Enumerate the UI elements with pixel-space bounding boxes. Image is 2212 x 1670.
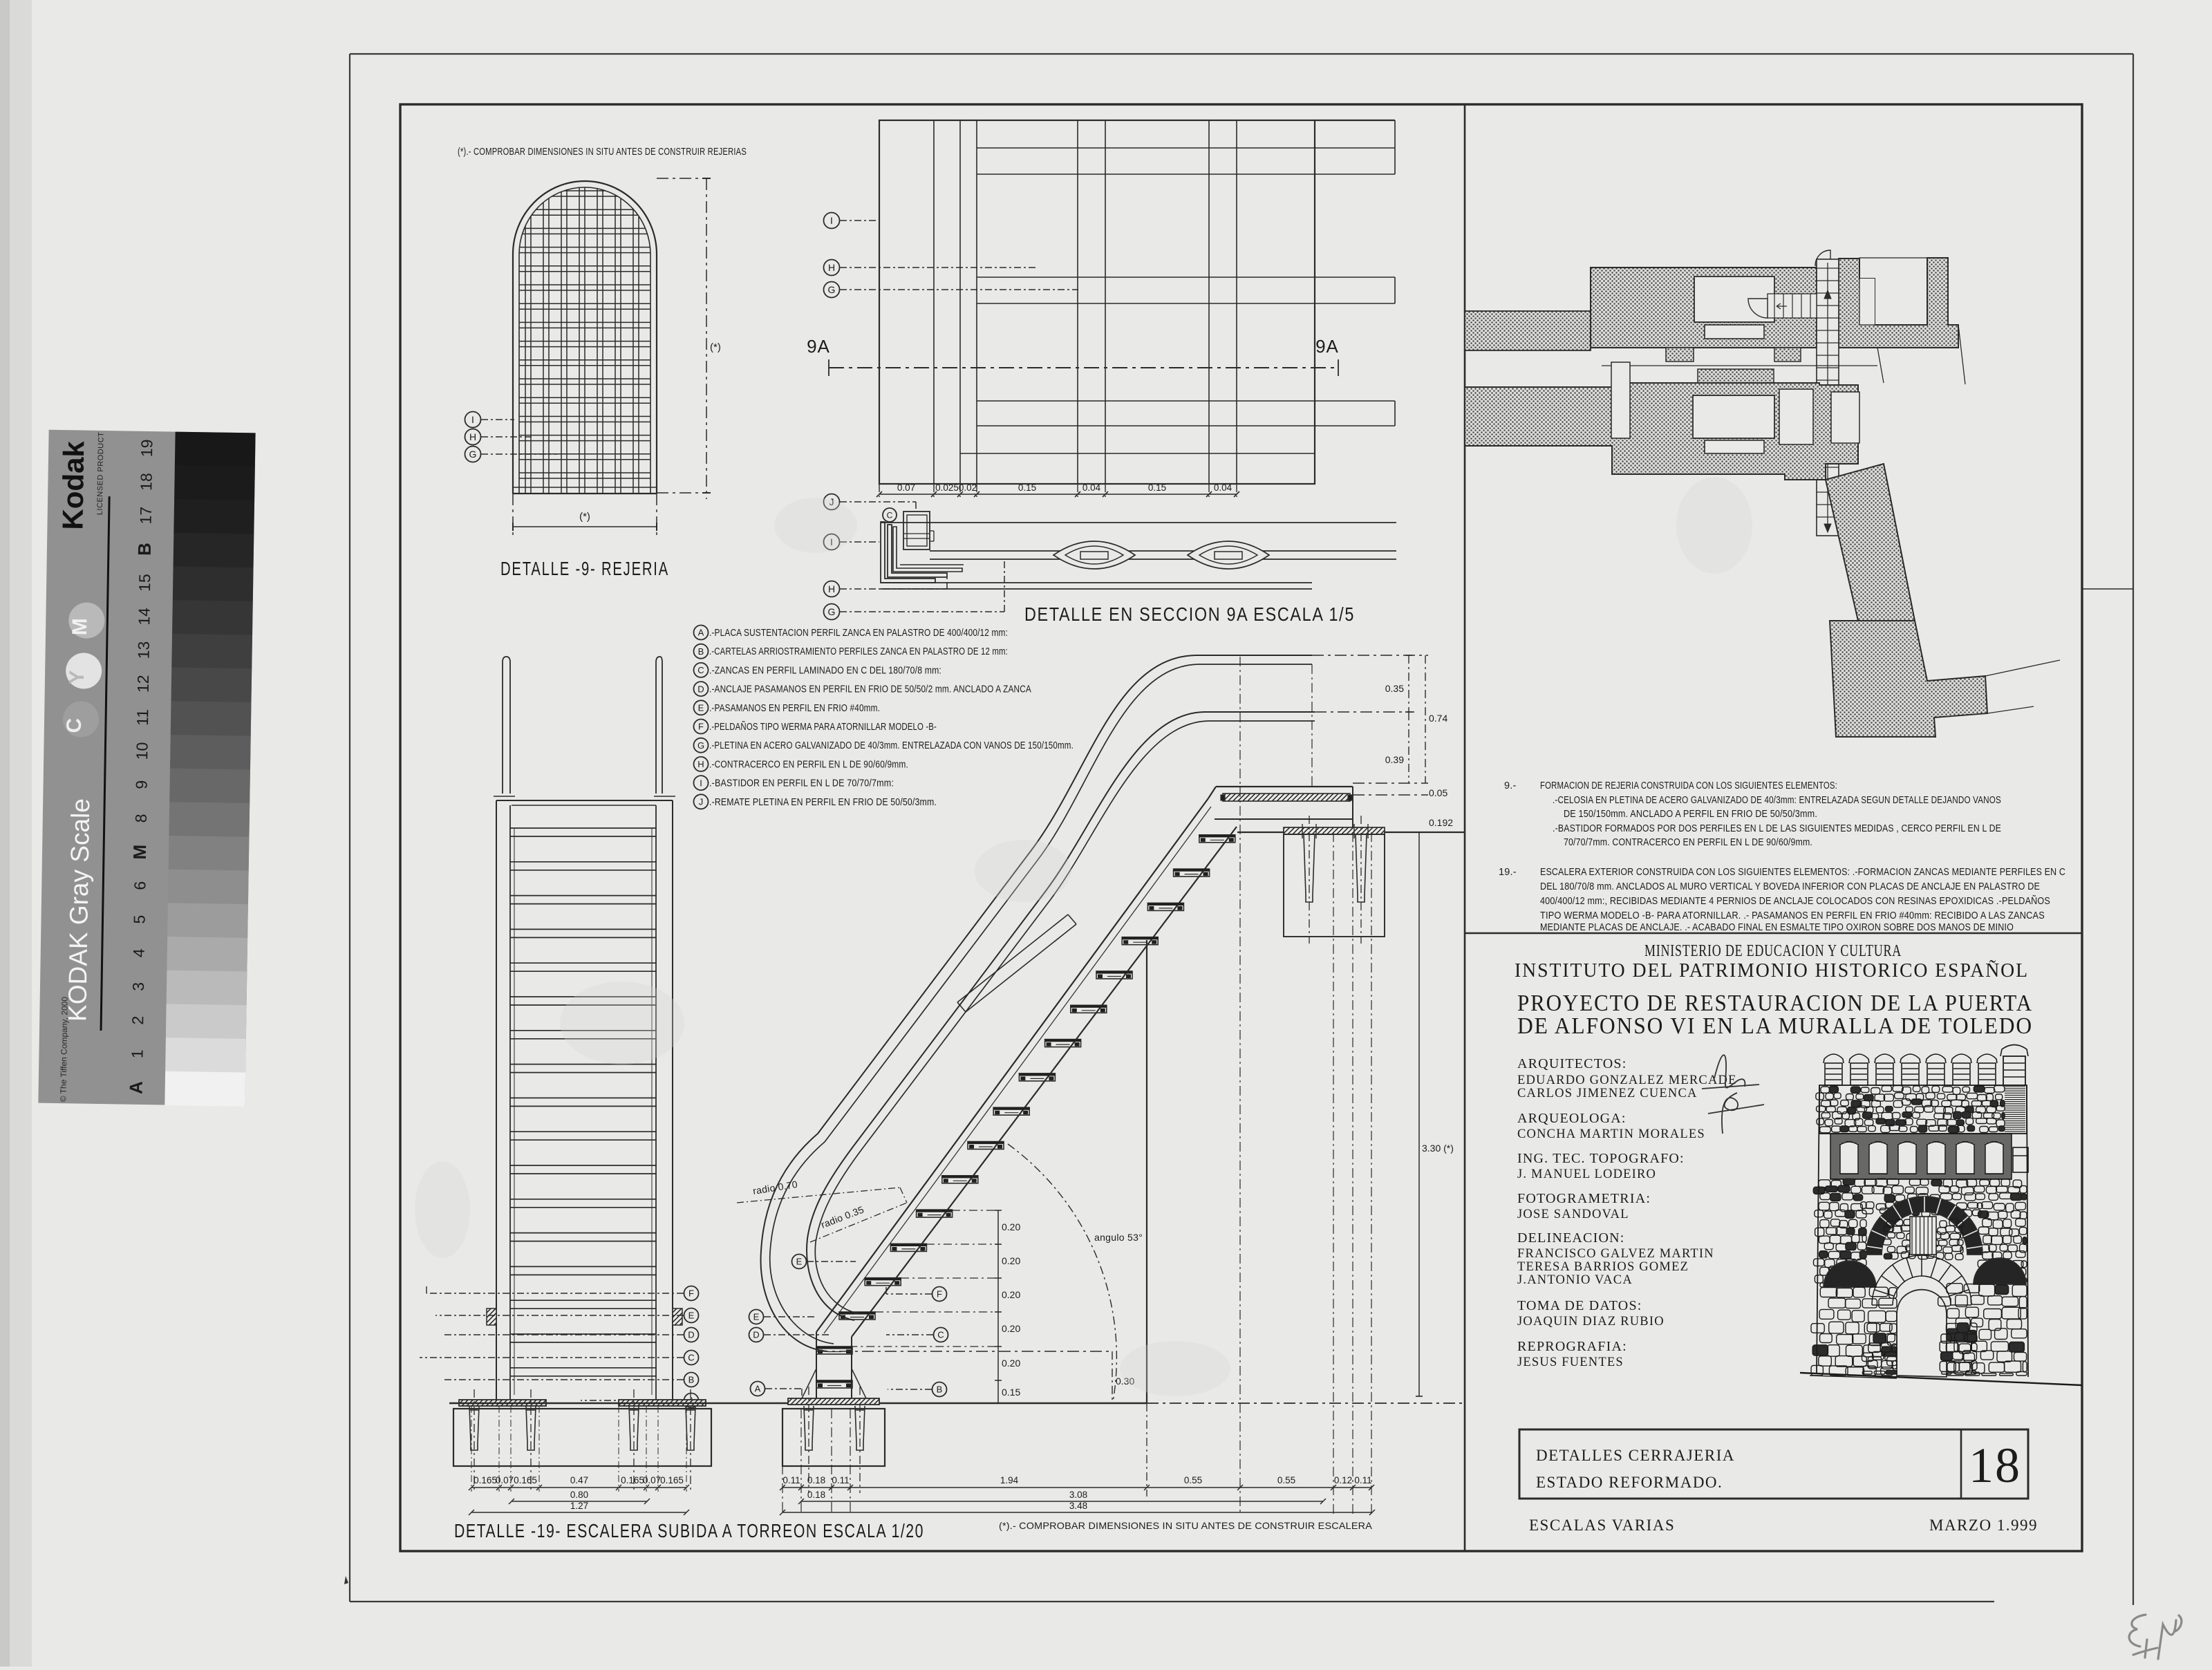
svg-text:.-CELOSIA EN PLETINA DE ACERO: .-CELOSIA EN PLETINA DE ACERO GALVANIZAD…: [1553, 795, 2001, 806]
svg-text:DETALLES CERRAJERIA: DETALLES CERRAJERIA: [1536, 1447, 1735, 1464]
svg-text:.-ANCLAJE PASAMANOS EN PERFIL: .-ANCLAJE PASAMANOS EN PERFIL EN FRIO DE…: [709, 684, 1031, 695]
svg-text:H: H: [828, 262, 835, 273]
svg-text:17: 17: [137, 507, 155, 525]
svg-text:.-REMATE PLETINA EN PERFIL EN: .-REMATE PLETINA EN PERFIL EN FRIO DE 50…: [709, 797, 937, 808]
svg-text:0.20: 0.20: [1002, 1289, 1020, 1300]
svg-text:12: 12: [134, 675, 152, 693]
svg-text:ARQUITECTOS:: ARQUITECTOS:: [1517, 1056, 1627, 1071]
svg-text:G: G: [828, 606, 836, 617]
svg-text:0.15: 0.15: [1002, 1387, 1020, 1398]
svg-text:F: F: [937, 1289, 942, 1300]
svg-text:TERESA BARRIOS GOMEZ: TERESA BARRIOS GOMEZ: [1517, 1260, 1689, 1274]
svg-text:DE ALFONSO VI EN LA MURAL: DE ALFONSO VI EN LA MURALLA DE TOLEDO: [1517, 1013, 2033, 1039]
svg-text:.-ZANCAS EN PERFIL LAMINADO EN: .-ZANCAS EN PERFIL LAMINADO EN C DEL 180…: [709, 665, 941, 676]
svg-text:Kodak: Kodak: [56, 440, 90, 530]
svg-text:0.35: 0.35: [1385, 683, 1404, 694]
svg-text:0.11: 0.11: [1354, 1475, 1371, 1485]
svg-text:C: C: [688, 1353, 694, 1363]
svg-text:MINISTERIO DE EDUCACION Y: MINISTERIO DE EDUCACION Y CULTURA: [1644, 942, 1902, 960]
svg-text:0.11: 0.11: [832, 1475, 849, 1485]
svg-text:H: H: [469, 431, 476, 442]
svg-text:C: C: [887, 510, 893, 520]
svg-text:0.04: 0.04: [1214, 482, 1232, 493]
svg-text:FORMACION DE REJERIA CONSTRUID: FORMACION DE REJERIA CONSTRUIDA CON LOS …: [1540, 780, 1837, 791]
svg-text:70/70/7mm. CONTRACERCO EN PERF: 70/70/7mm. CONTRACERCO EN PERFIL EN L DE…: [1564, 837, 1812, 848]
svg-text:9: 9: [133, 780, 151, 789]
svg-text:JOSE SANDOVAL: JOSE SANDOVAL: [1517, 1208, 1629, 1221]
svg-text:D: D: [688, 1330, 694, 1340]
svg-text:ING. TEC. TOPOGRAFO:: ING. TEC. TOPOGRAFO:: [1517, 1151, 1685, 1166]
svg-text:B: B: [688, 1375, 695, 1385]
svg-text:F: F: [698, 722, 704, 732]
svg-text:0.55: 0.55: [1277, 1475, 1295, 1485]
svg-text:9.-: 9.-: [1504, 780, 1517, 791]
svg-text:.-PELDAÑOS TIPO WERMA PARA ATO: .-PELDAÑOS TIPO WERMA PARA ATORNILLAR MO…: [709, 721, 937, 733]
svg-text:3.48: 3.48: [1069, 1501, 1087, 1511]
svg-text:G: G: [828, 284, 836, 295]
svg-text:CONCHA MARTIN MORALES: CONCHA MARTIN MORALES: [1517, 1127, 1705, 1141]
svg-text:I: I: [830, 215, 833, 226]
svg-text:TOMA DE DATOS:: TOMA DE DATOS:: [1517, 1298, 1642, 1313]
svg-text:0.04: 0.04: [1082, 482, 1101, 493]
svg-text:10: 10: [133, 742, 151, 760]
svg-text:3.08: 3.08: [1069, 1490, 1087, 1500]
svg-text:14: 14: [135, 608, 153, 626]
svg-text:ESCALAS VARIAS: ESCALAS VARIAS: [1529, 1517, 1675, 1534]
svg-text:.-BASTIDOR FORMADOS POR DOS PE: .-BASTIDOR FORMADOS POR DOS PERFILES EN …: [1553, 823, 2001, 834]
svg-text:M: M: [68, 617, 91, 635]
svg-text:DE 150/150mm. ANCLADO A PERFIL: DE 150/150mm. ANCLADO A PERFIL EN FRIO D…: [1564, 809, 1817, 820]
svg-text:0.20: 0.20: [1002, 1323, 1020, 1334]
svg-text:18: 18: [137, 473, 155, 491]
svg-text:FRANCISCO GALVEZ MARTIN: FRANCISCO GALVEZ MARTIN: [1517, 1247, 1714, 1261]
svg-text:C: C: [697, 665, 704, 675]
svg-text:LICENSED PRODUCT: LICENSED PRODUCT: [96, 432, 106, 516]
svg-text:0.47: 0.47: [570, 1475, 588, 1485]
svg-text:DETALLE EN SECCION 9A ESCA: DETALLE EN SECCION 9A ESCALA 1/5: [1024, 603, 1355, 625]
svg-text:B: B: [937, 1385, 943, 1395]
svg-text:0.18: 0.18: [807, 1475, 825, 1485]
svg-text:D: D: [753, 1330, 759, 1340]
svg-text:0.07: 0.07: [897, 482, 915, 493]
svg-text:A: A: [126, 1081, 147, 1094]
svg-text:0.165: 0.165: [660, 1475, 684, 1485]
svg-text:CARLOS JIMENEZ CUENCA: CARLOS JIMENEZ CUENCA: [1517, 1087, 1698, 1100]
svg-text:0.15: 0.15: [1148, 482, 1166, 493]
svg-text:F: F: [688, 1288, 694, 1299]
svg-text:I: I: [471, 414, 474, 425]
svg-text:0.165: 0.165: [514, 1475, 537, 1485]
svg-text:DEL 180/70/8 mm. ANCLADOS AL M: DEL 180/70/8 mm. ANCLADOS AL MURO VERTIC…: [1540, 881, 2040, 892]
svg-text:0.20: 0.20: [1002, 1221, 1020, 1232]
svg-text:400/400/12 mm:, RECIBIDAS MEDI: 400/400/12 mm:, RECIBIDAS MEDIANTE 4 PER…: [1540, 895, 2050, 907]
svg-text:J.ANTONIO VACA: J.ANTONIO VACA: [1517, 1273, 1633, 1287]
svg-text:TIPO WERMA MODELO -B- PARA ATO: TIPO WERMA MODELO -B- PARA ATORNILLAR. .…: [1540, 910, 2045, 921]
svg-text:ESCALERA EXTERIOR CONSTRUIDA C: ESCALERA EXTERIOR CONSTRUIDA CON LOS SIG…: [1540, 867, 2065, 878]
svg-text:8: 8: [132, 814, 150, 823]
svg-text:JOAQUIN DIAZ RUBIO: JOAQUIN DIAZ RUBIO: [1517, 1315, 1665, 1329]
svg-text:4: 4: [130, 948, 148, 957]
svg-text:angulo 53°: angulo 53°: [1094, 1232, 1143, 1243]
svg-text:0.18: 0.18: [807, 1490, 825, 1500]
svg-text:(*): (*): [579, 511, 590, 523]
svg-text:H: H: [697, 759, 704, 769]
svg-text:E: E: [753, 1312, 760, 1322]
svg-text:ARQUEOLOGA:: ARQUEOLOGA:: [1517, 1111, 1627, 1126]
svg-text:.-PASAMANOS EN PERFIL EN FRIO: .-PASAMANOS EN PERFIL EN FRIO #40mm.: [709, 703, 880, 714]
svg-text:B: B: [134, 543, 155, 556]
svg-text:(*): (*): [710, 341, 721, 353]
svg-text:0.02: 0.02: [959, 482, 977, 493]
svg-text:0.165: 0.165: [474, 1475, 497, 1485]
svg-text:C: C: [937, 1330, 944, 1340]
svg-text:0.07: 0.07: [496, 1475, 514, 1485]
svg-text:11: 11: [133, 709, 151, 726]
svg-text:19.-: 19.-: [1499, 867, 1517, 878]
svg-text:DETALLE -9- REJERIA: DETALLE -9- REJERIA: [500, 558, 669, 579]
svg-text:DELINEACION:: DELINEACION:: [1517, 1230, 1624, 1246]
svg-text:A: A: [698, 628, 704, 638]
svg-text:A: A: [755, 1384, 761, 1394]
svg-text:0.05: 0.05: [1429, 787, 1447, 798]
svg-text:0.07: 0.07: [643, 1475, 661, 1485]
svg-text:.-BASTIDOR EN PERFIL EN L DE 7: .-BASTIDOR EN PERFIL EN L DE 70/70/7mm:: [709, 778, 894, 789]
svg-text:C: C: [63, 717, 86, 733]
svg-text:J. MANUEL LODEIRO: J. MANUEL LODEIRO: [1517, 1167, 1656, 1181]
svg-text:MARZO 1.999: MARZO 1.999: [1929, 1517, 2038, 1534]
svg-text:0.025: 0.025: [935, 482, 959, 493]
svg-text:3: 3: [129, 982, 147, 991]
svg-text:JESUS FUENTES: JESUS FUENTES: [1517, 1355, 1624, 1369]
svg-text:DETALLE -19- ESCALERA SUB: DETALLE -19- ESCALERA SUBIDA A TORREON E…: [454, 1520, 924, 1541]
svg-text:E: E: [698, 703, 704, 713]
svg-text:0.55: 0.55: [1184, 1475, 1202, 1485]
svg-text:9A: 9A: [1315, 336, 1339, 357]
svg-text:0.80: 0.80: [570, 1490, 588, 1500]
svg-text:1: 1: [128, 1049, 146, 1058]
svg-text:0.15: 0.15: [1018, 482, 1036, 493]
svg-text:ESTADO REFORMADO.: ESTADO REFORMADO.: [1536, 1474, 1723, 1491]
svg-text:.-PLACA SUSTENTACION PERFIL ZA: .-PLACA SUSTENTACION PERFIL ZANCA EN PAL…: [709, 628, 1008, 639]
svg-text:G: G: [697, 740, 704, 751]
svg-text:E: E: [688, 1311, 695, 1321]
svg-text:B: B: [698, 646, 704, 657]
svg-text:0.20: 0.20: [1002, 1358, 1020, 1369]
svg-text:1.94: 1.94: [1000, 1475, 1019, 1485]
svg-text:H: H: [828, 583, 835, 594]
svg-text:1.27: 1.27: [570, 1501, 588, 1511]
svg-text:18: 18: [1969, 1438, 2021, 1493]
svg-text:REPROGRAFIA:: REPROGRAFIA:: [1517, 1339, 1627, 1354]
svg-text:(*).- COMPROBAR DIMENSIONES: (*).- COMPROBAR DIMENSIONES IN SITU ANTE…: [458, 147, 747, 158]
svg-text:0.165: 0.165: [621, 1475, 644, 1485]
svg-text:6: 6: [131, 881, 149, 890]
svg-text:0.39: 0.39: [1385, 754, 1404, 765]
svg-text:2: 2: [129, 1015, 147, 1024]
svg-text:EDUARDO GONZALEZ MERCADE: EDUARDO GONZALEZ MERCADE: [1517, 1073, 1737, 1087]
svg-text:KODAK Gray Scale: KODAK Gray Scale: [63, 798, 95, 1022]
svg-text:(*).- COMPROBAR DIMENSIONES I: (*).- COMPROBAR DIMENSIONES IN SITU ANTE…: [999, 1520, 1372, 1531]
svg-text:3.30 (*): 3.30 (*): [1422, 1143, 1454, 1154]
svg-text:0.20: 0.20: [1002, 1255, 1020, 1266]
svg-text:.-CARTELAS ARRIOSTRAMIENTO PER: .-CARTELAS ARRIOSTRAMIENTO PERFILES ZANC…: [709, 646, 1008, 657]
svg-text:J: J: [699, 797, 704, 807]
svg-text:M: M: [129, 845, 150, 860]
svg-text:13: 13: [134, 641, 152, 659]
svg-text:INSTITUTO DEL PATRIMONIO: INSTITUTO DEL PATRIMONIO HISTORICO ESPAÑ…: [1515, 959, 2029, 982]
svg-text:FOTOGRAMETRIA:: FOTOGRAMETRIA:: [1517, 1191, 1651, 1206]
svg-text:0.11: 0.11: [782, 1475, 800, 1485]
svg-text:G: G: [469, 449, 477, 460]
svg-text:© The Tiffen Company, 2000: © The Tiffen Company, 2000: [58, 997, 69, 1103]
svg-text:D: D: [697, 684, 704, 694]
svg-text:9A: 9A: [807, 336, 830, 357]
svg-text:0.192: 0.192: [1429, 817, 1453, 828]
svg-text:PROYECTO DE RESTAURACION DE: PROYECTO DE RESTAURACION DE LA PUERTA: [1517, 991, 2033, 1016]
svg-text:I: I: [700, 778, 702, 788]
svg-text:.-CONTRACERCO EN PERFIL EN L D: .-CONTRACERCO EN PERFIL EN L DE 90/60/9m…: [709, 759, 908, 770]
svg-text:15: 15: [135, 574, 153, 592]
svg-text:0.74: 0.74: [1429, 713, 1447, 724]
svg-text:19: 19: [138, 439, 156, 457]
svg-text:MEDIANTE PLACAS DE ANCLAJE. .-: MEDIANTE PLACAS DE ANCLAJE. .- ACABADO F…: [1540, 922, 2014, 933]
svg-text:0.12: 0.12: [1334, 1475, 1352, 1485]
svg-text:E: E: [796, 1257, 803, 1267]
svg-text:Y: Y: [66, 670, 88, 684]
svg-text:.-PLETINA EN ACERO GALVANIZADO: .-PLETINA EN ACERO GALVANIZADO DE 40/3mm…: [709, 740, 1074, 751]
svg-text:5: 5: [130, 914, 148, 923]
